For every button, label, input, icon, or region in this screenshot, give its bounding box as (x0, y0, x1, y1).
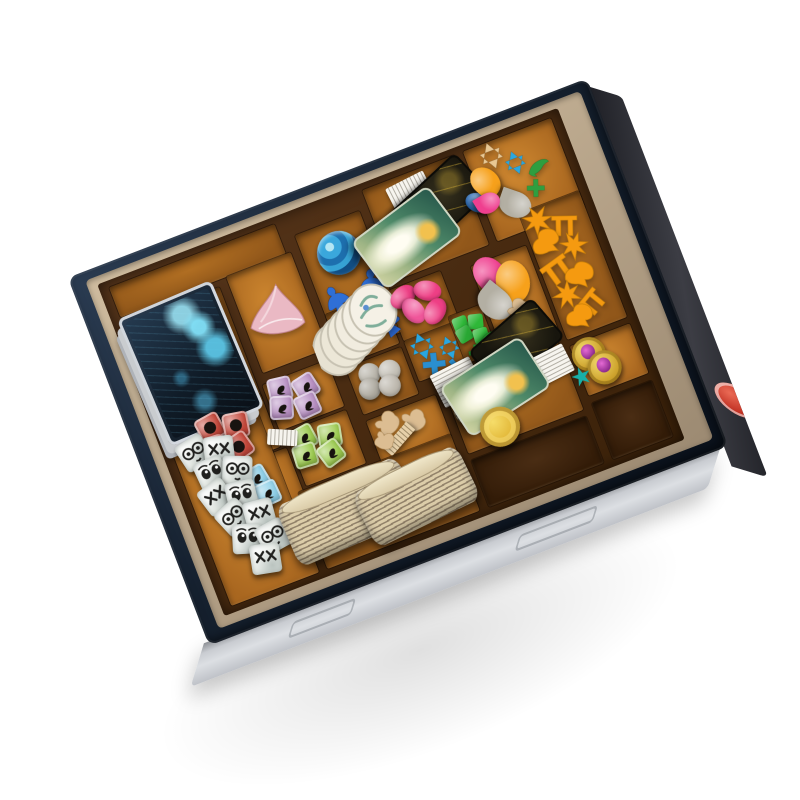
orange-piece (561, 298, 598, 335)
purple-gem (594, 355, 613, 374)
card-stack-edge (267, 429, 298, 447)
empty-slot-1 (592, 380, 673, 459)
cross-token (526, 178, 546, 198)
die (269, 395, 294, 420)
face-tile (249, 541, 283, 575)
photo-stage: Board game box with wooden organizer ins… (0, 0, 800, 800)
